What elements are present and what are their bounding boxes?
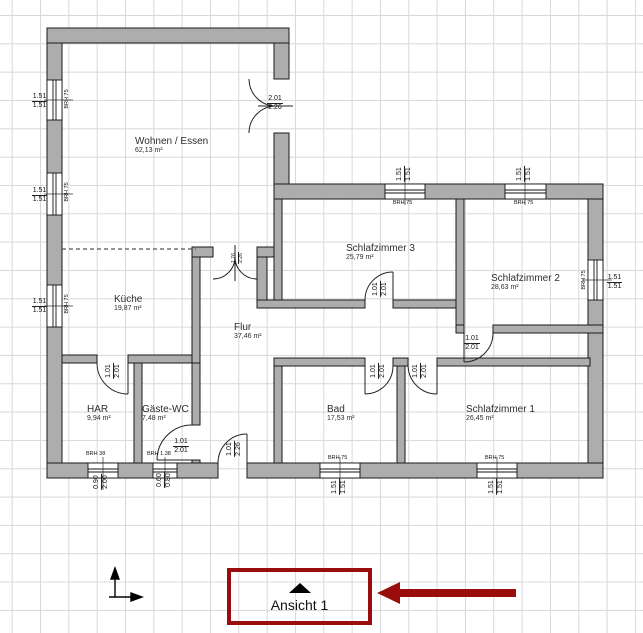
window-size-label: 0.60 0.80 bbox=[156, 472, 172, 488]
door-height: 2.01 bbox=[379, 364, 387, 378]
window-width: 1.51 bbox=[331, 479, 340, 495]
room-area: 9,94 m² bbox=[87, 415, 111, 423]
window-sill-label: BRH 75 bbox=[64, 294, 70, 313]
room-name: Küche bbox=[114, 294, 142, 305]
door-size-label: 1.76 2.26 bbox=[232, 252, 244, 264]
room-area: 26,45 m² bbox=[466, 415, 535, 423]
door-size-label: 1.01 2.01 bbox=[169, 438, 193, 454]
window-height: 1.51 bbox=[608, 283, 622, 291]
window-sill-label: BRH 75 bbox=[64, 89, 70, 108]
door-height: 2.26 bbox=[235, 442, 243, 456]
room-area: 17,53 m² bbox=[327, 415, 355, 423]
door-width: 2.01 bbox=[267, 95, 283, 104]
room-label-kueche: Küche 19,87 m² bbox=[114, 294, 142, 313]
window-size-label: 0.90 2.00 bbox=[93, 474, 109, 490]
door-width: 1.01 bbox=[464, 335, 480, 344]
window-height: 1.51 bbox=[497, 480, 505, 494]
room-name: Flur bbox=[234, 322, 262, 333]
room-area: 62,13 m² bbox=[135, 147, 208, 155]
window-size-label: 1.51 1.51 bbox=[331, 479, 347, 495]
door-width: 1.01 bbox=[105, 363, 114, 379]
drawing-canvas[interactable]: Wohnen / Essen 62,13 m² Küche 19,87 m² F… bbox=[0, 0, 643, 633]
window-width: 1.51 bbox=[32, 93, 48, 102]
room-area: 25,79 m² bbox=[346, 254, 415, 262]
view-direction-triangle-icon bbox=[289, 583, 311, 593]
window-sill-label: BRH 38 bbox=[86, 451, 105, 457]
window-sill-label: BRH 75 bbox=[328, 455, 347, 461]
room-label-bad: Bad 17,53 m² bbox=[327, 404, 355, 423]
window-height: 1.51 bbox=[33, 102, 47, 110]
door-height: 2.01 bbox=[465, 344, 479, 352]
room-area: 37,46 m² bbox=[234, 333, 262, 341]
window-height: 0.80 bbox=[165, 473, 173, 487]
window-height: 1.51 bbox=[405, 167, 413, 181]
window-size-label: 1.51 1.51 bbox=[606, 274, 623, 290]
window-sill-label: BRH 75 bbox=[514, 200, 533, 206]
window-width: 1.51 bbox=[607, 274, 623, 283]
window-width: 0.90 bbox=[93, 474, 102, 490]
room-name: Gäste-WC bbox=[142, 404, 189, 415]
window-width: 1.51 bbox=[32, 187, 48, 196]
door-height: 2.01 bbox=[381, 282, 389, 296]
window-size-label: 1.51 1.51 bbox=[31, 187, 48, 203]
room-area: 19,87 m² bbox=[114, 305, 142, 313]
door-height: 2.01 bbox=[421, 364, 429, 378]
door-width: 1.01 bbox=[372, 281, 381, 297]
room-name: Schlafzimmer 3 bbox=[346, 243, 415, 254]
room-label-schlafzimmer1: Schlafzimmer 1 26,45 m² bbox=[466, 404, 535, 423]
room-label-har: HAR 9,94 m² bbox=[87, 404, 111, 423]
room-name: Bad bbox=[327, 404, 355, 415]
door-width: 1.01 bbox=[173, 438, 189, 447]
door-width: 1.01 bbox=[226, 441, 235, 457]
floorplan-drawing bbox=[0, 0, 643, 633]
view-marker-ansicht1[interactable]: Ansicht 1 bbox=[227, 568, 372, 625]
window-height: 1.51 bbox=[525, 167, 533, 181]
room-label-schlafzimmer3: Schlafzimmer 3 25,79 m² bbox=[346, 243, 415, 262]
window-width: 1.51 bbox=[488, 479, 497, 495]
room-name: HAR bbox=[87, 404, 111, 415]
room-name: Schlafzimmer 1 bbox=[466, 404, 535, 415]
window-width: 0.60 bbox=[156, 472, 165, 488]
pointer-arrow bbox=[377, 582, 516, 604]
door-height: 2.26 bbox=[268, 104, 282, 112]
door-height: 2.01 bbox=[174, 447, 188, 455]
door-size-label: 1.01 2.01 bbox=[372, 281, 388, 297]
window-size-label: 1.51 1.51 bbox=[31, 93, 48, 109]
room-label-wohnen-essen: Wohnen / Essen 62,13 m² bbox=[135, 136, 208, 155]
room-label-schlafzimmer2: Schlafzimmer 2 28,63 m² bbox=[491, 273, 560, 292]
door-size-label: 1.01 2.01 bbox=[412, 363, 428, 379]
window-height: 1.51 bbox=[33, 307, 47, 315]
door-size-label: 1.01 2.01 bbox=[105, 363, 121, 379]
window-width: 1.51 bbox=[516, 166, 525, 182]
door-size-label: 1.01 2.01 bbox=[461, 335, 483, 351]
window-size-label: 1.51 1.51 bbox=[396, 166, 412, 182]
window-sill-label: BRH 75 bbox=[485, 455, 504, 461]
window-height: 1.51 bbox=[33, 196, 47, 204]
window-sill-label: BRH 75 bbox=[64, 182, 70, 201]
window-size-label: 1.51 1.51 bbox=[516, 166, 532, 182]
door-size-label: 2.01 2.26 bbox=[263, 95, 287, 111]
room-name: Wohnen / Essen bbox=[135, 136, 208, 147]
room-label-flur: Flur 37,46 m² bbox=[234, 322, 262, 341]
room-name: Schlafzimmer 2 bbox=[491, 273, 560, 284]
window-sill-label: BRH 75 bbox=[581, 270, 587, 289]
door-height: 2.26 bbox=[239, 253, 245, 263]
view-marker-label: Ansicht 1 bbox=[271, 597, 329, 613]
window bbox=[505, 184, 546, 199]
door-width: 1.01 bbox=[370, 363, 379, 379]
door-height: 2.01 bbox=[114, 364, 122, 378]
window-height: 2.00 bbox=[102, 475, 110, 489]
room-area: 28,63 m² bbox=[491, 284, 560, 292]
window-sill-label: BRH 75 bbox=[393, 200, 412, 206]
door-width: 1.01 bbox=[412, 363, 421, 379]
window-size-label: 1.51 1.51 bbox=[31, 298, 48, 314]
door-size-label: 1.01 2.01 bbox=[370, 363, 386, 379]
window-width: 1.51 bbox=[396, 166, 405, 182]
window-width: 1.51 bbox=[32, 298, 48, 307]
window-height: 1.51 bbox=[340, 480, 348, 494]
room-label-gaeste-wc: Gäste-WC 7,48 m² bbox=[142, 404, 189, 423]
window-sill-label: BRH 1.38 bbox=[147, 451, 171, 457]
axis-icon bbox=[109, 568, 142, 601]
window-size-label: 1.51 1.51 bbox=[488, 479, 504, 495]
room-area: 7,48 m² bbox=[142, 415, 189, 423]
door-size-label: 1.01 2.26 bbox=[226, 441, 242, 457]
